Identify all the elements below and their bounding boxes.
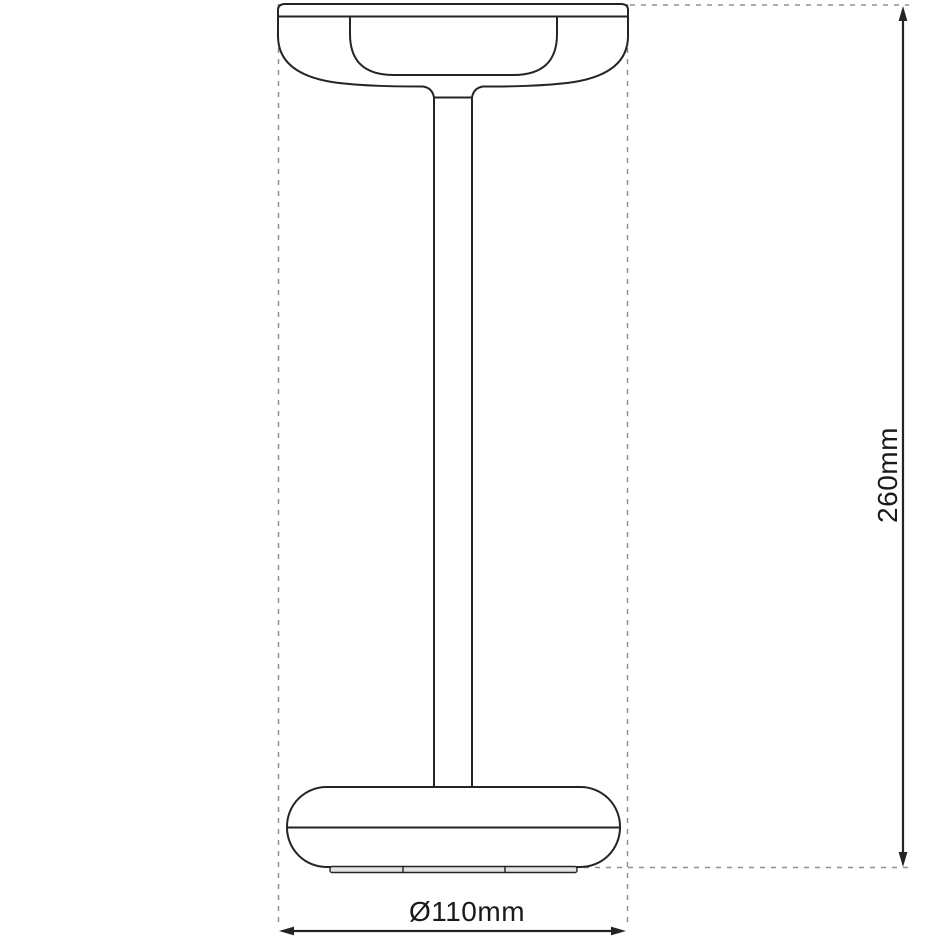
arrow-up-icon — [899, 6, 908, 21]
lamp-head-outline — [278, 4, 628, 98]
dimension-drawing-canvas: 260mm Ø110mm — [0, 0, 940, 940]
diameter-dimension-label: Ø110mm — [409, 896, 525, 928]
lamp-dimension-drawing — [0, 0, 940, 940]
arrow-left-icon — [279, 927, 294, 936]
lamp-outline-group — [278, 4, 628, 873]
lamp-foot-pad — [330, 867, 577, 873]
height-dimension-label: 260mm — [872, 427, 904, 523]
arrow-right-icon — [611, 927, 626, 936]
arrow-down-icon — [899, 852, 908, 867]
